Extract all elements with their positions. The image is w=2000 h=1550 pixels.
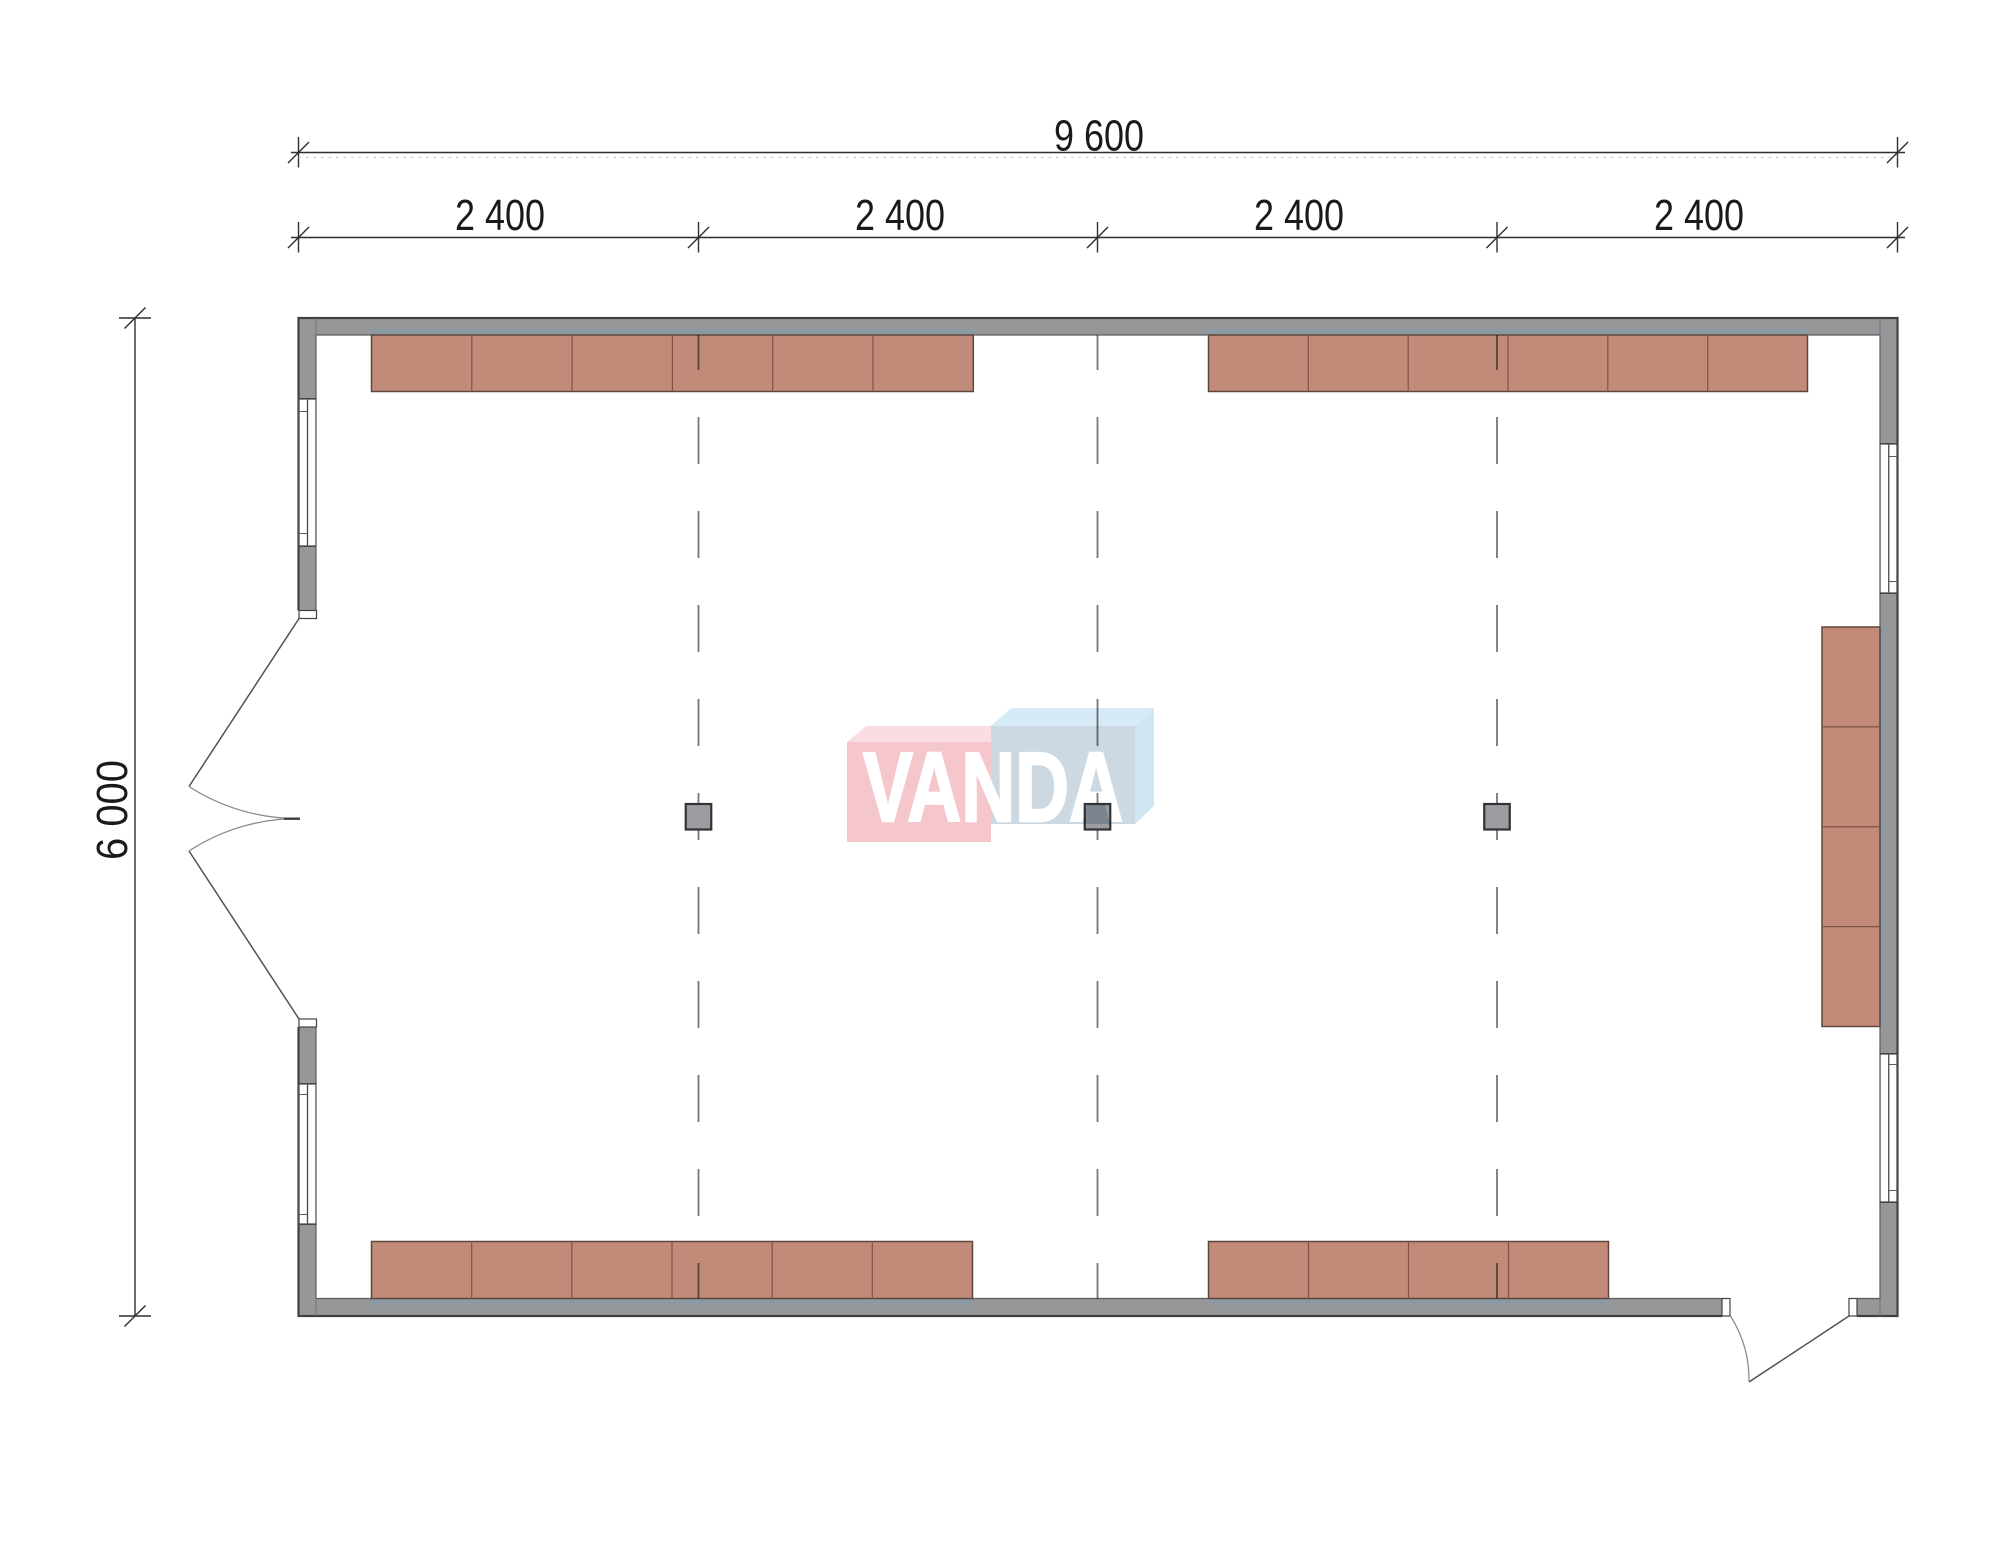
svg-text:9 600: 9 600	[1054, 112, 1144, 161]
svg-text:2 400: 2 400	[1254, 191, 1344, 240]
svg-text:6 000: 6 000	[88, 760, 137, 860]
svg-text:2 400: 2 400	[855, 191, 945, 240]
svg-text:2 400: 2 400	[455, 191, 545, 240]
svg-text:2 400: 2 400	[1654, 191, 1744, 240]
